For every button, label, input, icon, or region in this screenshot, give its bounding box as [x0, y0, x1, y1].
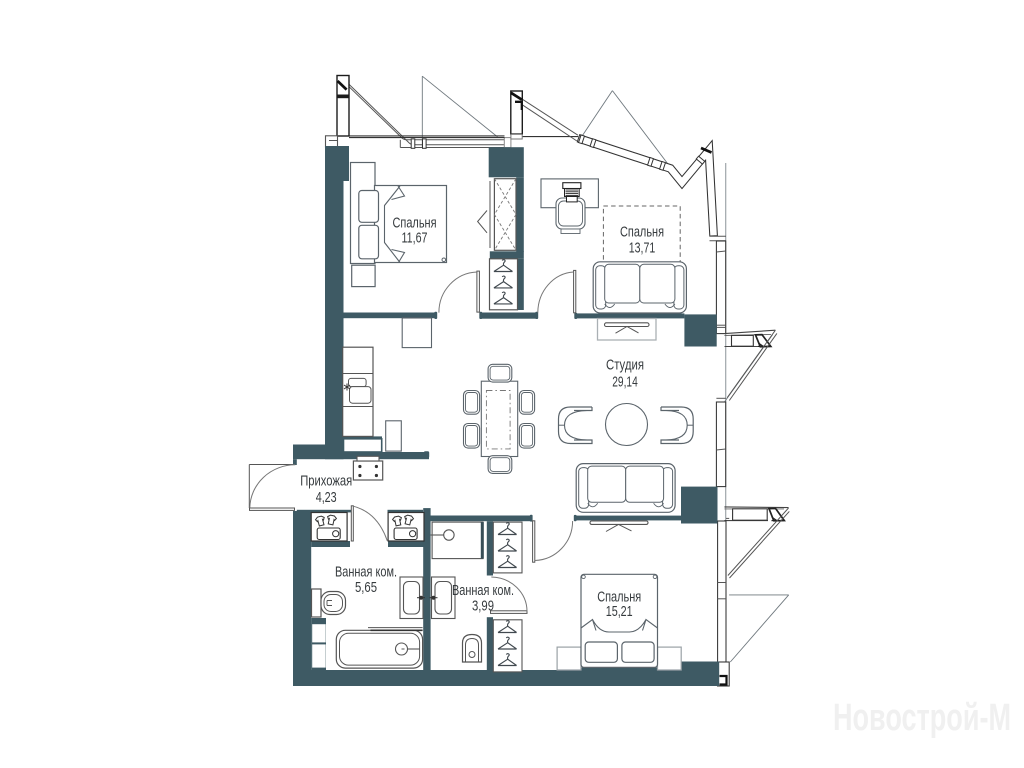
svg-text:4,23: 4,23	[316, 489, 337, 506]
svg-text:Новострой-М: Новострой-М	[833, 697, 1011, 739]
svg-text:13,71: 13,71	[629, 240, 656, 257]
svg-text:Ванная ком.: Ванная ком.	[452, 582, 514, 599]
svg-text:Ванная ком.: Ванная ком.	[335, 563, 397, 580]
svg-text:15,21: 15,21	[606, 603, 633, 620]
svg-text:29,14: 29,14	[612, 373, 638, 390]
svg-text:11,67: 11,67	[402, 230, 428, 247]
svg-text:Спальня: Спальня	[620, 224, 664, 241]
svg-text:Прихожая: Прихожая	[300, 473, 352, 490]
svg-text:Студия: Студия	[606, 356, 644, 373]
svg-text:5,65: 5,65	[355, 579, 377, 596]
svg-text:3,99: 3,99	[472, 598, 494, 615]
